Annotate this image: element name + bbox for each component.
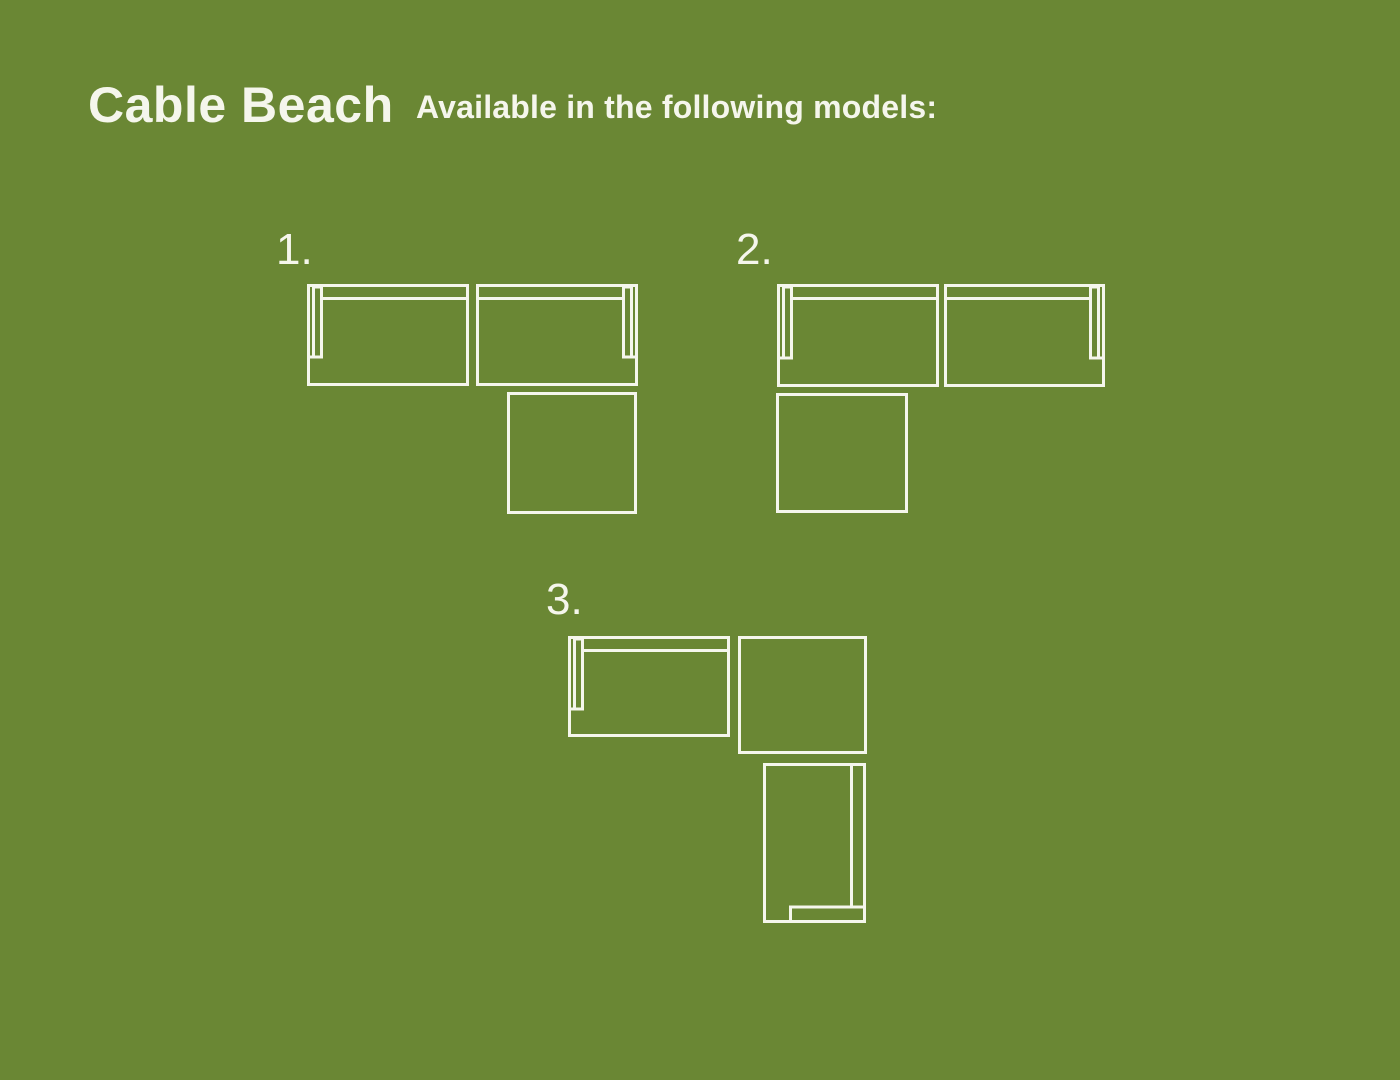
models-diagram <box>0 0 1400 1080</box>
sofa-right-arm-outline <box>478 286 637 385</box>
corner-ottoman-outline <box>740 638 866 753</box>
corner-ottoman-outline <box>778 395 907 512</box>
page-canvas: Cable Beach Available in the following m… <box>0 0 1400 1080</box>
sofa-right-arm-outline <box>946 286 1104 386</box>
sofa-left-arm-outline <box>570 638 729 736</box>
model-1-pieces <box>309 286 637 513</box>
chaise-vertical-back-right-outline <box>765 765 865 922</box>
model-2-pieces <box>778 286 1104 512</box>
sofa-left-arm-outline <box>309 286 468 385</box>
model-3-pieces <box>570 638 866 922</box>
sofa-left-arm-outline <box>779 286 938 386</box>
corner-ottoman-outline <box>509 394 636 513</box>
